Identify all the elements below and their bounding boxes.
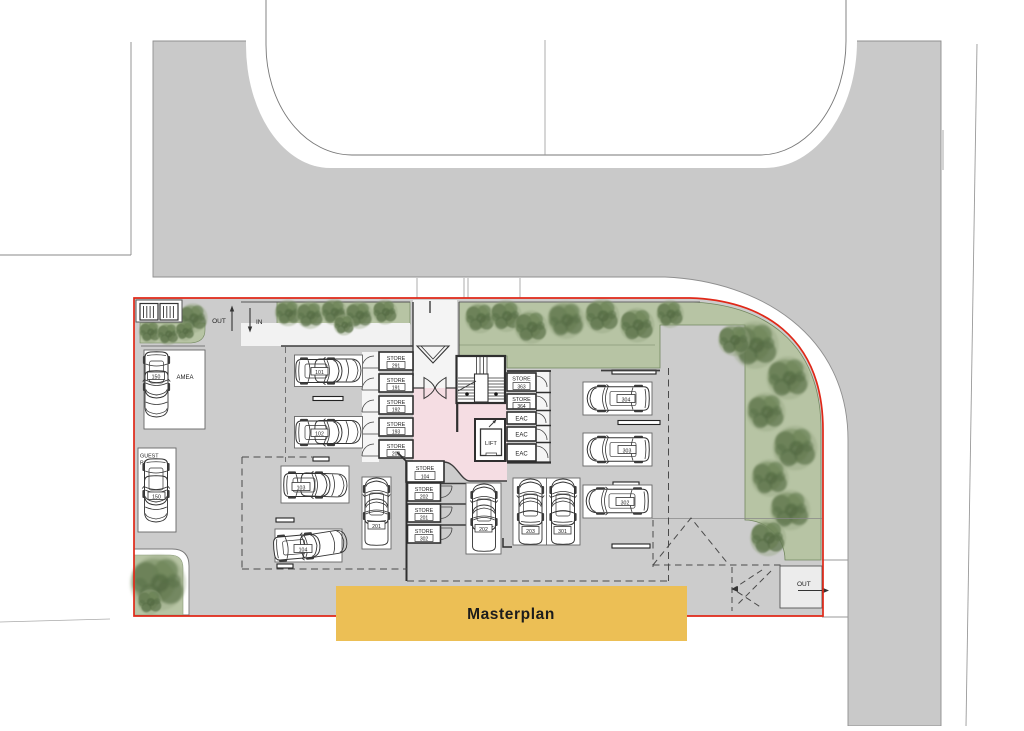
svg-text:STORE: STORE (512, 377, 531, 383)
svg-text:202: 202 (420, 495, 429, 501)
svg-text:104: 104 (299, 547, 308, 553)
svg-text:Masterplan: Masterplan (467, 606, 555, 623)
svg-text:STORE: STORE (387, 378, 406, 384)
svg-text:203: 203 (526, 529, 535, 535)
svg-text:302: 302 (420, 537, 429, 543)
svg-text:104: 104 (421, 475, 430, 481)
svg-text:AMEA: AMEA (176, 375, 193, 381)
svg-text:201: 201 (372, 524, 381, 530)
svg-text:STORE: STORE (416, 466, 435, 472)
svg-text:101: 101 (315, 370, 324, 376)
svg-text:302: 302 (621, 500, 630, 506)
svg-text:202: 202 (479, 527, 488, 533)
svg-text:STORE: STORE (387, 400, 406, 406)
svg-text:EAC: EAC (515, 417, 528, 423)
svg-text:303: 303 (623, 448, 632, 454)
svg-text:STORE: STORE (512, 397, 531, 403)
svg-text:304: 304 (622, 397, 631, 403)
svg-text:IN: IN (256, 319, 263, 326)
svg-text:102: 102 (315, 431, 324, 437)
svg-text:193: 193 (392, 430, 401, 436)
svg-text:OUT: OUT (212, 318, 226, 325)
svg-text:191: 191 (392, 386, 401, 392)
svg-text:STORE: STORE (415, 487, 434, 493)
svg-text:EAC: EAC (515, 433, 528, 439)
svg-text:STORE: STORE (387, 356, 406, 362)
svg-text:STORE: STORE (387, 422, 406, 428)
svg-text:150: 150 (152, 494, 161, 500)
svg-text:EAC: EAC (515, 452, 528, 458)
svg-text:150: 150 (152, 374, 161, 380)
svg-text:301: 301 (558, 529, 567, 535)
svg-text:291: 291 (392, 364, 401, 370)
svg-text:STORE: STORE (415, 529, 434, 535)
svg-text:201: 201 (420, 516, 429, 522)
svg-text:103: 103 (297, 485, 306, 491)
svg-text:192: 192 (392, 408, 401, 414)
svg-text:STORE: STORE (387, 444, 406, 450)
svg-text:364: 364 (517, 404, 526, 410)
svg-text:STORE: STORE (415, 508, 434, 514)
svg-text:OUT: OUT (797, 581, 811, 588)
svg-text:363: 363 (517, 385, 526, 391)
svg-text:LIFT: LIFT (485, 441, 497, 447)
